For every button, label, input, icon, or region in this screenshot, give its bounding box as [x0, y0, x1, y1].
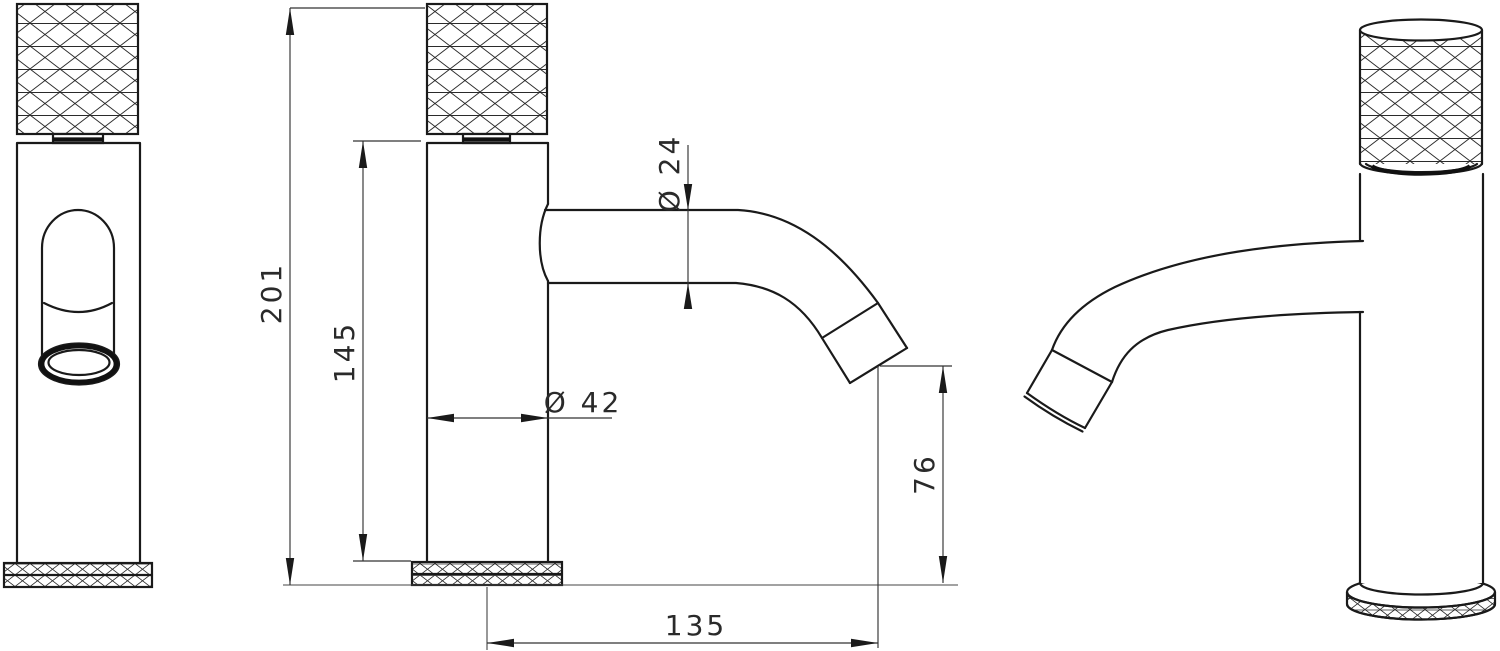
drawing-svg: 201 145 Ø 24 Ø 42: [0, 0, 1500, 651]
dim-135-arrow-right: [851, 639, 878, 647]
dim-145-label: 145: [328, 321, 361, 383]
dim-201-arrow-bottom: [286, 558, 294, 585]
dim-201-arrow-top: [286, 8, 294, 35]
dim-145-arrow-top: [359, 141, 367, 168]
perspective-knob-top-ellipse: [1360, 20, 1482, 41]
dim-201-label: 201: [255, 262, 288, 324]
dim-42-label: Ø 42: [544, 386, 623, 419]
side-spout-top: [545, 210, 907, 348]
perspective-spout-tip-face-inner: [1025, 397, 1083, 432]
perspective-spout: [1025, 241, 1364, 432]
perspective-spout-bottom: [1112, 312, 1363, 382]
perspective-aerator-joint: [1052, 350, 1112, 382]
dim-24-arrow-bottom: [684, 283, 692, 309]
dim-overall-height: 201: [255, 8, 425, 585]
perspective-spout-top: [1052, 241, 1363, 350]
dim-76-arrow-bottom: [939, 556, 947, 583]
dim-outlet-height: 76: [880, 366, 952, 583]
side-aerator-joint: [822, 303, 878, 338]
front-spout-silhouette: [42, 210, 114, 357]
perspective-neck-shadow: [1372, 166, 1470, 174]
front-knob-knurl: [17, 4, 138, 134]
dim-145-arrow-bottom: [359, 534, 367, 561]
perspective-spout-tip-sides: [1027, 350, 1112, 428]
side-view: [283, 4, 958, 650]
side-knob-knurl: [427, 4, 547, 134]
dim-76-label: 76: [908, 453, 941, 495]
perspective-spout-tip-face: [1027, 393, 1085, 428]
front-view: [4, 4, 152, 587]
dim-76-arrow-top: [939, 366, 947, 393]
perspective-knob-knurl: [1360, 30, 1482, 164]
dim-24-label: Ø 24: [653, 134, 686, 213]
side-spout-bottom: [548, 283, 850, 383]
side-spout-fillet: [540, 204, 548, 281]
dim-135-label: 135: [665, 609, 727, 642]
dimensions: 201 145 Ø 24 Ø 42: [255, 8, 952, 648]
dim-42-arrow-left: [427, 414, 454, 422]
faucet-technical-drawing: 201 145 Ø 24 Ø 42: [0, 0, 1500, 651]
dim-135-arrow-left: [487, 639, 514, 647]
side-body: [427, 143, 548, 562]
front-aerator-rim: [42, 346, 116, 382]
perspective-knob: [1360, 20, 1482, 175]
perspective-view: [1025, 20, 1496, 620]
perspective-body-fill: [1360, 174, 1483, 583]
dim-body-height: 145: [328, 141, 421, 561]
dim-body-diameter: Ø 42: [427, 386, 622, 422]
